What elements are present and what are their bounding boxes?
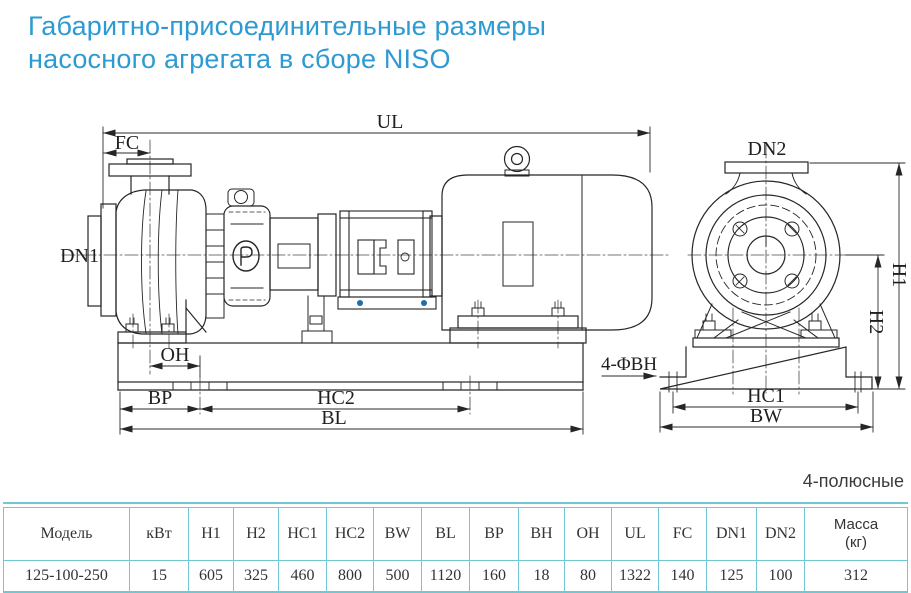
col-header-mass-line2: (кг) — [806, 534, 906, 551]
label-dn1: DN1 — [60, 245, 99, 267]
spec-table-header-row: Модель кВт H1 H2 HC1 HC2 BW BL BP BH OH … — [4, 507, 908, 560]
col-header-mass-line1: Масса — [806, 516, 906, 533]
label-bw: BW — [750, 405, 782, 427]
pump-foot — [118, 300, 206, 343]
col-header-bl: BL — [422, 507, 470, 560]
col-header-kw: кВт — [130, 507, 189, 560]
cell-h2: 325 — [234, 560, 279, 592]
label-oh: OH — [161, 344, 190, 366]
label-h2: H2 — [865, 310, 887, 334]
brand-logo-p — [241, 247, 252, 265]
lifting-eye-icon — [512, 154, 523, 165]
volute-casing — [116, 190, 206, 334]
spec-table-wrap: Модель кВт H1 H2 HC1 HC2 BW BL BP BH OH … — [3, 502, 908, 593]
casing-cover-ribs — [206, 214, 224, 318]
cell-dn1: 125 — [707, 560, 757, 592]
label-h1: H1 — [888, 263, 910, 287]
cell-ul: 1322 — [612, 560, 659, 592]
bolt-dot-icon — [357, 300, 363, 306]
col-header-oh: OH — [565, 507, 612, 560]
label-bp: BP — [148, 387, 172, 409]
brand-logo-icon — [233, 241, 259, 271]
col-header-model: Модель — [4, 507, 130, 560]
label-bolt-holes: 4-ΦBH — [601, 354, 657, 375]
bracket-support — [302, 296, 332, 343]
col-header-hc2: HC2 — [327, 507, 374, 560]
cell-bh: 18 — [519, 560, 565, 592]
cell-hc1: 460 — [279, 560, 327, 592]
cell-model: 125-100-250 — [4, 560, 130, 592]
bolt-dot-icon — [421, 300, 427, 306]
coupling-guard — [338, 211, 436, 309]
label-hc2: HC2 — [317, 387, 355, 409]
spec-table: Модель кВт H1 H2 HC1 HC2 BW BL BP BH OH … — [3, 507, 908, 593]
motor — [430, 147, 652, 344]
col-header-dn1: DN1 — [707, 507, 757, 560]
col-header-hc1: HC1 — [279, 507, 327, 560]
cell-bw: 500 — [374, 560, 422, 592]
col-header-mass: Масса (кг) — [805, 507, 908, 560]
pole-count-note: 4-полюсные — [803, 471, 904, 492]
lifting-eye-icon — [505, 147, 530, 172]
pump-dimension-drawing: UL FC DN1 OH BP HC2 BL 4-ΦBH DN2 H1 H2 H… — [0, 0, 911, 500]
end-discharge-flange — [725, 162, 808, 194]
dimension-labels: UL FC DN1 OH BP HC2 BL 4-ΦBH DN2 H1 H2 H… — [60, 111, 910, 429]
col-header-bp: BP — [470, 507, 519, 560]
cell-fc: 140 — [659, 560, 707, 592]
cell-hc2: 800 — [327, 560, 374, 592]
col-header-dn2: DN2 — [757, 507, 805, 560]
col-header-h1: H1 — [189, 507, 234, 560]
cell-h1: 605 — [189, 560, 234, 592]
col-header-bh: BH — [519, 507, 565, 560]
page: Габаритно-присоединительные размеры насо… — [0, 0, 911, 593]
col-header-fc: FC — [659, 507, 707, 560]
cell-dn2: 100 — [757, 560, 805, 592]
cell-bl: 1120 — [422, 560, 470, 592]
bearing-bracket — [224, 189, 270, 306]
cell-mass: 312 — [805, 560, 908, 592]
col-header-bw: BW — [374, 507, 422, 560]
spec-table-data-row: 125-100-250 15 605 325 460 800 500 1120 … — [4, 560, 908, 592]
label-dn2: DN2 — [748, 138, 787, 160]
label-fc: FC — [115, 132, 139, 154]
label-ul: UL — [377, 111, 404, 133]
bearing-housing — [270, 218, 318, 290]
label-bl: BL — [321, 407, 347, 429]
cell-oh: 80 — [565, 560, 612, 592]
label-hc1: HC1 — [747, 385, 785, 407]
cell-bp: 160 — [470, 560, 519, 592]
cell-kw: 15 — [130, 560, 189, 592]
col-header-h2: H2 — [234, 507, 279, 560]
col-header-ul: UL — [612, 507, 659, 560]
motor-nameplate — [503, 222, 533, 286]
